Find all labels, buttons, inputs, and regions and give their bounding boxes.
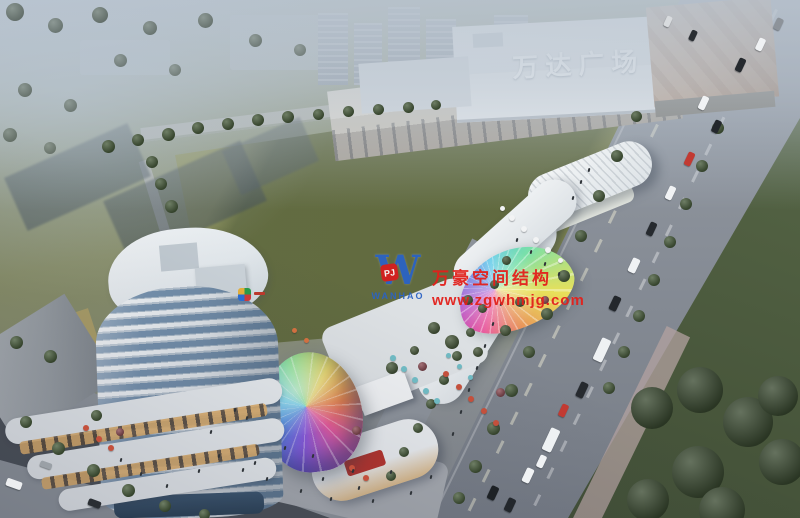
tree xyxy=(91,410,102,421)
tree xyxy=(631,111,642,122)
umbrella xyxy=(468,375,473,380)
tree xyxy=(132,134,144,146)
tree xyxy=(611,150,623,162)
tree xyxy=(18,83,32,97)
car xyxy=(558,403,570,418)
tree xyxy=(249,34,262,47)
watermark: W PJ WANHAO 万豪空间结构 www.zgwhmjg.com xyxy=(368,250,583,310)
person-dot xyxy=(166,484,169,488)
person-dot xyxy=(210,430,213,434)
tree xyxy=(199,509,210,518)
car xyxy=(536,454,548,469)
tree xyxy=(10,336,23,349)
car xyxy=(575,381,589,399)
car xyxy=(87,498,102,509)
person-dot xyxy=(410,491,413,495)
car xyxy=(608,295,622,312)
watermark-text: 万豪空间结构 www.zgwhmjg.com xyxy=(432,264,585,309)
umbrella xyxy=(533,237,539,243)
tree xyxy=(410,346,419,355)
tree xyxy=(696,160,708,172)
tree xyxy=(116,428,124,436)
tree xyxy=(664,236,676,248)
tree xyxy=(282,111,294,123)
tree xyxy=(575,230,587,242)
tree xyxy=(155,178,167,190)
person-dot xyxy=(120,458,123,462)
tree xyxy=(680,198,692,210)
tree xyxy=(162,128,175,141)
tree xyxy=(452,351,462,361)
tree xyxy=(431,100,441,110)
umbrella xyxy=(108,445,114,451)
tree xyxy=(399,447,409,457)
person-dot xyxy=(352,469,355,473)
umbrella xyxy=(446,353,451,358)
tree xyxy=(169,64,181,76)
tree xyxy=(403,102,414,113)
person-dot xyxy=(234,408,237,412)
umbrella xyxy=(412,377,418,383)
person-dot xyxy=(242,468,245,472)
person-dot xyxy=(300,489,303,493)
person-dot xyxy=(572,196,575,200)
car xyxy=(39,460,52,470)
tree xyxy=(146,156,158,168)
umbrella xyxy=(493,420,499,426)
watermark-url: www.zgwhmjg.com xyxy=(432,292,585,309)
tree xyxy=(313,109,324,120)
umbrella xyxy=(456,384,462,390)
tree xyxy=(413,423,423,433)
person-dot xyxy=(452,432,455,436)
bus xyxy=(592,337,611,363)
tree xyxy=(192,122,204,134)
car xyxy=(688,29,698,42)
car xyxy=(663,15,673,28)
watermark-logo-name: WANHAO xyxy=(368,291,428,301)
tree xyxy=(593,190,605,202)
aerial-architectural-rendering: 万达广场 xyxy=(0,0,800,518)
car xyxy=(486,485,499,501)
park-tree-canopy xyxy=(677,367,723,413)
bus xyxy=(541,427,560,453)
tree xyxy=(48,18,63,33)
umbrella xyxy=(96,436,102,442)
tree xyxy=(523,346,535,358)
tree xyxy=(466,328,475,337)
tree xyxy=(222,118,234,130)
park-tree-canopy xyxy=(627,479,669,518)
tree xyxy=(252,114,264,126)
tree xyxy=(114,54,127,67)
tree xyxy=(44,350,57,363)
person-dot xyxy=(372,499,375,503)
park-tree-canopy xyxy=(631,387,673,429)
person-dot xyxy=(358,486,361,490)
umbrella xyxy=(401,366,407,372)
watermark-logo: W PJ WANHAO xyxy=(368,254,428,310)
tree xyxy=(418,362,427,371)
person-dot xyxy=(476,366,479,370)
tree xyxy=(505,384,518,397)
tree xyxy=(428,322,440,334)
umbrella xyxy=(304,338,309,343)
tree xyxy=(633,310,645,322)
tree xyxy=(3,128,17,142)
tree xyxy=(92,7,108,23)
car xyxy=(734,57,746,73)
tree xyxy=(52,442,65,455)
car xyxy=(521,467,535,484)
tree xyxy=(618,346,630,358)
car xyxy=(664,185,676,201)
person-dot xyxy=(492,322,495,326)
person-dot xyxy=(266,477,269,481)
tree xyxy=(469,460,482,473)
tree xyxy=(87,464,100,477)
umbrella xyxy=(468,396,474,402)
person-dot xyxy=(330,497,333,501)
umbrella xyxy=(363,475,369,481)
tree xyxy=(165,200,178,213)
person-dot xyxy=(254,461,257,465)
tree xyxy=(352,426,361,435)
person-dot xyxy=(322,477,325,481)
tree xyxy=(294,44,306,56)
person-dot xyxy=(198,469,201,473)
umbrella xyxy=(443,371,449,377)
tree xyxy=(159,500,171,512)
umbrella xyxy=(457,364,462,369)
tree xyxy=(496,388,505,397)
tree xyxy=(603,382,615,394)
person-dot xyxy=(580,180,583,184)
car xyxy=(627,257,641,274)
tree xyxy=(198,13,213,28)
umbrella xyxy=(292,328,297,333)
tree xyxy=(373,104,384,115)
umbrella xyxy=(521,226,527,232)
umbrella xyxy=(500,206,505,211)
person-dot xyxy=(484,344,487,348)
person-dot xyxy=(588,168,591,172)
car xyxy=(645,221,657,237)
tree xyxy=(44,142,56,154)
tree xyxy=(64,99,77,112)
person-dot xyxy=(460,410,463,414)
tree xyxy=(102,140,115,153)
tree xyxy=(445,335,459,349)
park-tree-canopy xyxy=(759,439,800,485)
car xyxy=(773,17,784,31)
person-dot xyxy=(218,454,221,458)
umbrella xyxy=(434,398,440,404)
tree xyxy=(648,274,660,286)
tree xyxy=(143,21,157,35)
tree xyxy=(122,484,135,497)
person-dot xyxy=(140,472,143,476)
car xyxy=(697,95,709,111)
tree xyxy=(20,416,32,428)
tree xyxy=(343,106,354,117)
car xyxy=(5,478,23,491)
watermark-logo-badge: PJ xyxy=(380,263,399,282)
watermark-company: 万豪空间结构 xyxy=(432,264,585,289)
person-dot xyxy=(430,475,433,479)
umbrella xyxy=(83,425,89,431)
car xyxy=(755,37,767,52)
tree xyxy=(473,347,483,357)
car xyxy=(683,151,695,167)
person-dot xyxy=(468,388,471,392)
person-dot xyxy=(516,238,519,242)
car xyxy=(503,497,516,513)
person-dot xyxy=(246,416,249,420)
park-tree-canopy xyxy=(758,376,798,416)
umbrella xyxy=(481,408,487,414)
umbrella xyxy=(509,215,515,221)
tree xyxy=(500,325,511,336)
person-dot xyxy=(312,454,315,458)
tree xyxy=(386,362,398,374)
umbrella xyxy=(423,388,429,394)
umbrella xyxy=(390,355,396,361)
person-dot xyxy=(284,446,287,450)
tree xyxy=(453,492,465,504)
tree xyxy=(6,3,24,21)
